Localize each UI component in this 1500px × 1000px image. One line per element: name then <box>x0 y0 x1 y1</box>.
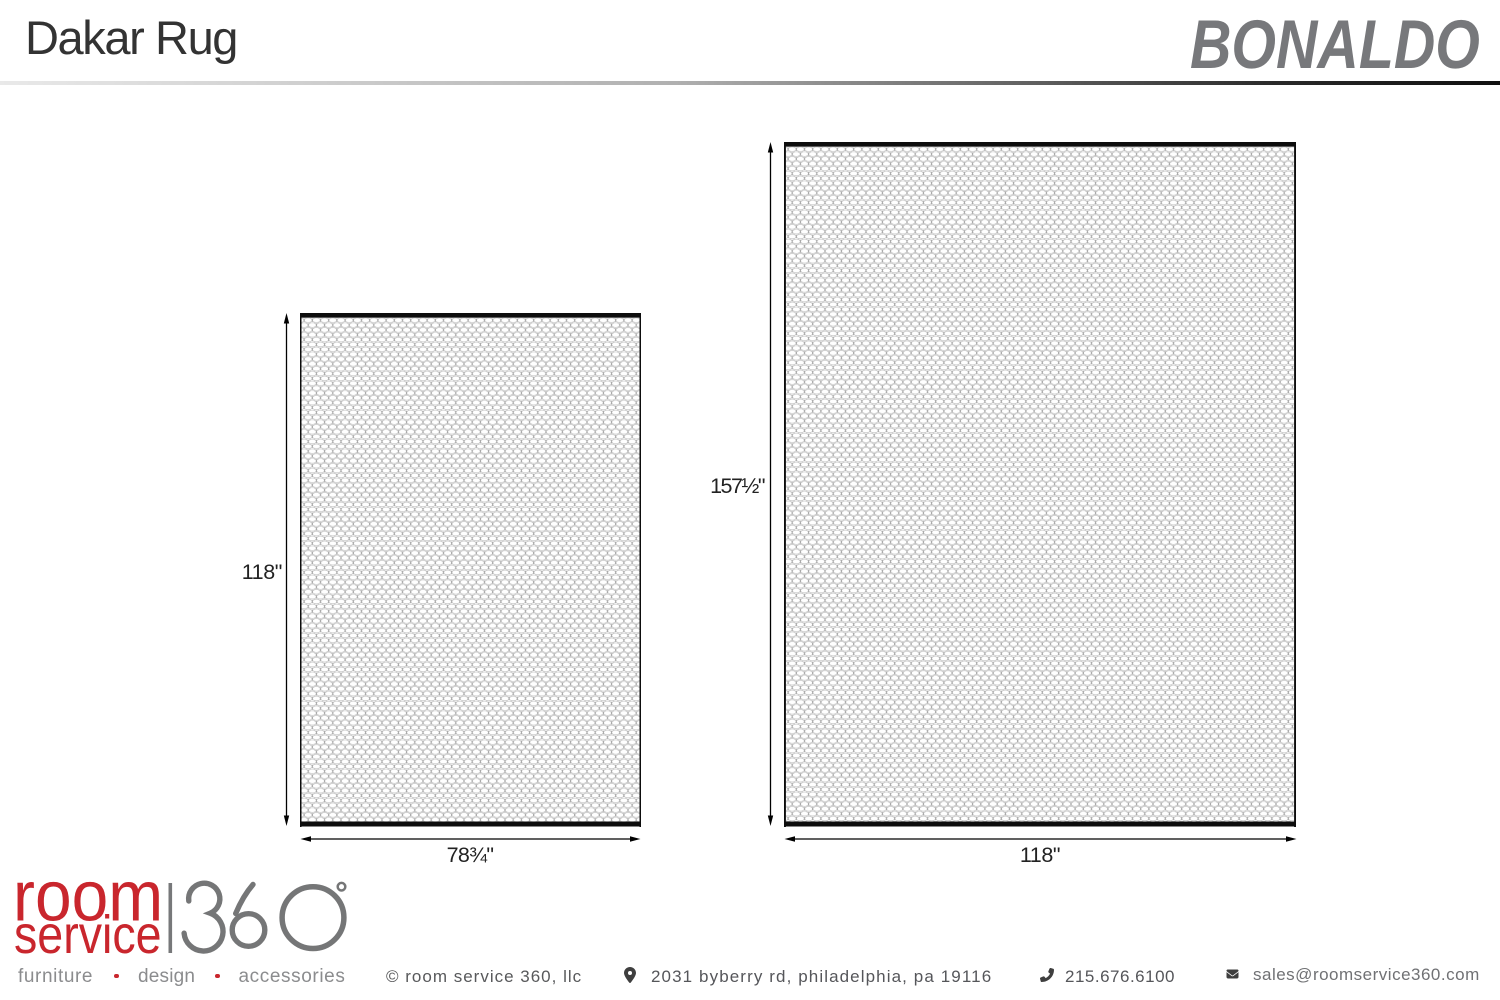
svg-text:BONALDO: BONALDO <box>1190 6 1480 80</box>
svg-text:service: service <box>14 904 162 965</box>
